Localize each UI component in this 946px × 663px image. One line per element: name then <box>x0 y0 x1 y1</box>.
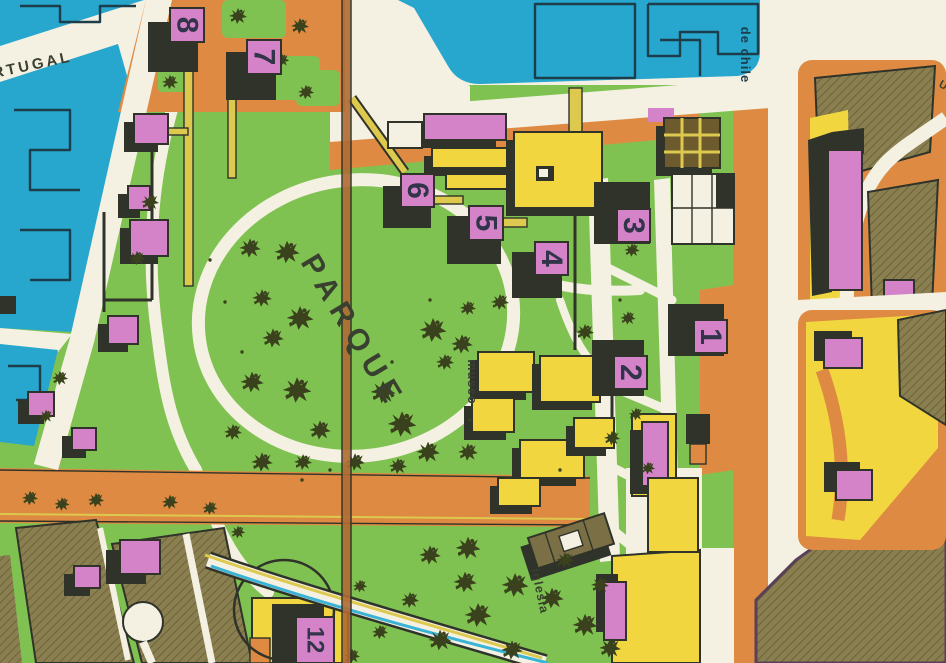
marker-4-number: 4 <box>535 250 568 267</box>
shrub-dot <box>223 300 226 303</box>
marker-12-number: 12 <box>302 627 329 654</box>
shrub-dot <box>208 258 211 261</box>
city-map-canvas: 1 2 3 4 5 6 7 <box>0 0 946 663</box>
shrub-dot <box>328 468 331 471</box>
pink-tower-bottom <box>604 582 626 640</box>
shrub-dot <box>240 350 243 353</box>
marker-7-number: 7 <box>248 49 281 66</box>
marker-1-number: 1 <box>694 328 727 345</box>
shrub-dot <box>558 468 561 471</box>
pink-long-building <box>424 114 506 140</box>
museum-main-block <box>514 132 602 208</box>
marker-8-number: 8 <box>171 17 204 34</box>
pink-tower-right <box>828 150 862 290</box>
right-blocks <box>798 60 946 550</box>
marker-6-number: 6 <box>401 182 434 199</box>
shrub-dot <box>300 478 303 481</box>
poi-marker-3: 3 <box>594 182 650 244</box>
poi-marker-1: 1 <box>668 304 727 356</box>
museum-label: museo <box>465 359 479 404</box>
scanned-city-map: 1 2 3 4 5 6 7 <box>0 0 946 663</box>
marker-2-number: 2 <box>614 364 647 381</box>
marker-5-number: 5 <box>470 215 503 232</box>
pink-tower-park <box>642 422 668 486</box>
shrub-dot <box>468 418 471 421</box>
brown-building <box>664 118 720 168</box>
shrub-dot <box>428 298 431 301</box>
shrub-dot <box>618 298 621 301</box>
water-block-top-center <box>398 0 760 84</box>
poi-marker-2: 2 <box>592 340 647 396</box>
street-label-de-chile: de chile <box>738 27 753 83</box>
orange-avenue-vertical <box>733 98 768 663</box>
marker-3-number: 3 <box>617 217 650 234</box>
